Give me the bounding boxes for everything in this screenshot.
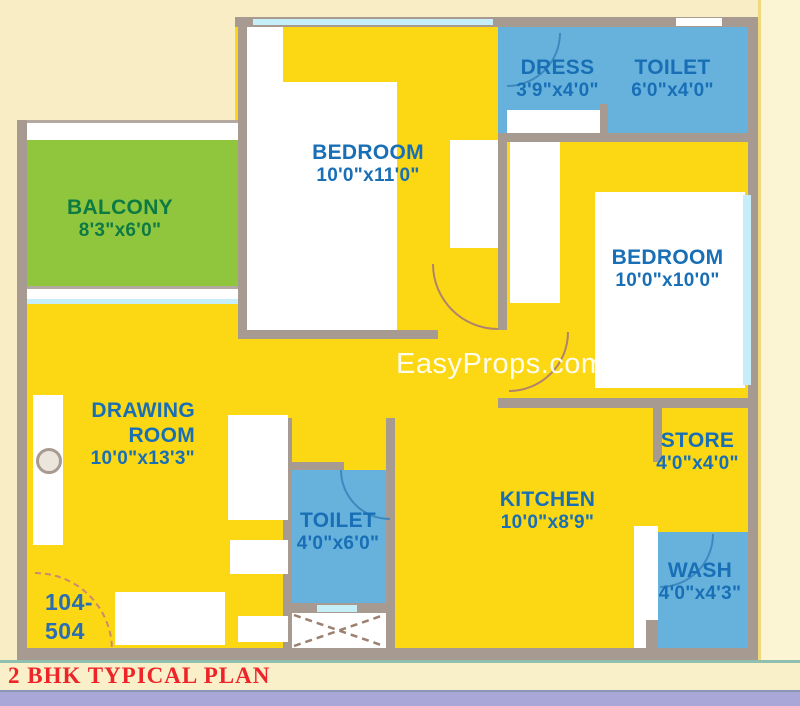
balcony-dims: 8'3"x6'0": [45, 220, 195, 243]
wash-label: WASH 4'0"x4'3": [650, 558, 750, 606]
drawing-room-sofa: [115, 592, 225, 645]
bedroom2-name: BEDROOM: [570, 245, 765, 270]
toilet-mid-name: TOILET: [288, 508, 388, 533]
drawing-room-label: DRAWING ROOM 10'0"x13'3": [60, 398, 195, 471]
wash-dims: 4'0"x4'3": [650, 583, 750, 606]
footer-strip: [0, 690, 800, 706]
dress-label: DRESS 3'9"x4'0": [505, 55, 610, 103]
drawing-room-dims: 10'0"x13'3": [60, 448, 195, 471]
drawing-room-side-table: [238, 616, 288, 642]
bedroom1-right-wall: [498, 133, 507, 330]
wash-name: WASH: [650, 558, 750, 583]
main-door-knob: [36, 448, 62, 474]
bedroom2-dims: 10'0"x10'0": [570, 270, 765, 293]
toilet-top-label: TOILET 6'0"x4'0": [615, 55, 730, 103]
page-edge-strip: [758, 0, 800, 660]
toilet-mid-dims: 4'0"x6'0": [288, 533, 388, 556]
dress-counter: [507, 110, 605, 133]
unit-number-line2: 504: [45, 617, 93, 646]
kitchen-name: KITCHEN: [455, 487, 640, 512]
bedroom2-top-wall: [498, 133, 758, 142]
drawing-room-unit: [230, 540, 288, 574]
balcony-window-top: [27, 123, 238, 140]
store-label: STORE 4'0"x4'0": [645, 428, 750, 476]
dress-name: DRESS: [505, 55, 610, 80]
plan-title: 2 BHK TYPICAL PLAN: [8, 663, 270, 689]
bedroom2-label: BEDROOM 10'0"x10'0": [570, 245, 765, 293]
toilet-mid-window: [317, 605, 357, 612]
wash-left-wall-stub: [646, 620, 658, 648]
outer-bottom-wall: [17, 648, 758, 660]
balcony-window-bottom: [27, 289, 238, 299]
drawing-room-name: DRAWING ROOM: [60, 398, 195, 448]
watermark-text: EasyProps.com: [396, 348, 606, 381]
unit-number-line1: 104-: [45, 588, 93, 617]
balcony-window-glass: [27, 299, 238, 304]
floor-plan-image: BEDROOM 10'0"x11'0" DRESS 3'9"x4'0" TOIL…: [0, 0, 800, 706]
toilet-top-window: [676, 18, 722, 26]
balcony-name: BALCONY: [45, 195, 195, 220]
store-dims: 4'0"x4'0": [645, 453, 750, 476]
toilet-mid-top-wall: [292, 462, 344, 470]
kitchen-label: KITCHEN 10'0"x8'9": [455, 487, 640, 535]
outer-left-wall: [17, 120, 27, 660]
bedroom1-bed: [283, 82, 397, 330]
dress-dims: 3'9"x4'0": [505, 80, 610, 103]
store-name: STORE: [645, 428, 750, 453]
bedroom1-top-window: [253, 19, 493, 25]
bedroom1-name: BEDROOM: [268, 140, 468, 165]
duct-cross-mark: [292, 613, 386, 648]
drawing-room-cabinet: [228, 415, 288, 520]
footer-band: 2 BHK TYPICAL PLAN: [0, 663, 800, 690]
bedroom1-left-wall: [238, 17, 247, 339]
duct-shaft: [292, 613, 386, 648]
toilet-top-dims: 6'0"x4'0": [615, 80, 730, 103]
toilet-top-name: TOILET: [615, 55, 730, 80]
bedroom2-bottom-wall: [498, 398, 758, 408]
bedroom1-dims: 10'0"x11'0": [268, 165, 468, 188]
bedroom1-label: BEDROOM 10'0"x11'0": [268, 140, 468, 188]
background-corner: [0, 0, 235, 120]
balcony-label: BALCONY 8'3"x6'0": [45, 195, 195, 243]
dress-toilet-divider-wall: [600, 104, 608, 133]
bedroom2-wardrobe: [510, 142, 560, 303]
bedroom1-bottom-wall: [238, 330, 438, 339]
unit-number: 104- 504: [45, 588, 93, 646]
kitchen-dims: 10'0"x8'9": [455, 512, 640, 535]
toilet-mid-label: TOILET 4'0"x6'0": [288, 508, 388, 556]
